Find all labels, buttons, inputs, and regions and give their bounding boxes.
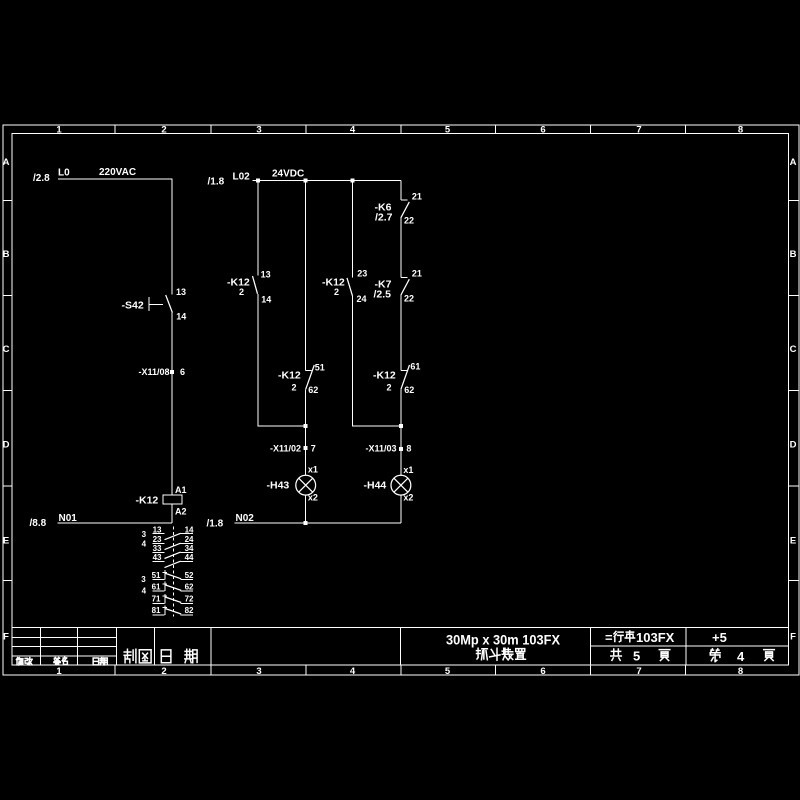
svg-text:/2.5: /2.5: [374, 289, 392, 301]
svg-text:24: 24: [185, 535, 194, 544]
svg-text:E: E: [790, 536, 796, 547]
svg-text:3: 3: [141, 575, 146, 584]
svg-text:3: 3: [256, 666, 261, 677]
svg-text:4: 4: [142, 586, 147, 595]
svg-text:24VDC: 24VDC: [272, 169, 304, 180]
svg-text:6: 6: [540, 666, 545, 677]
svg-text:x2: x2: [308, 493, 318, 503]
svg-text:43: 43: [153, 553, 162, 562]
svg-text:14: 14: [176, 312, 186, 322]
svg-text:N01: N01: [59, 513, 78, 524]
svg-text:4: 4: [350, 666, 356, 677]
svg-text:61: 61: [410, 362, 420, 372]
svg-text:62: 62: [404, 385, 414, 395]
svg-text:1: 1: [56, 666, 62, 677]
svg-text:C: C: [790, 344, 797, 355]
svg-text:3: 3: [256, 125, 261, 136]
svg-text:13: 13: [176, 287, 186, 297]
svg-text:14: 14: [261, 295, 271, 305]
svg-text:1: 1: [56, 125, 62, 136]
svg-text:61: 61: [152, 582, 161, 591]
svg-text:81: 81: [152, 606, 161, 615]
svg-text:4: 4: [737, 649, 745, 664]
svg-text:6: 6: [540, 125, 545, 136]
svg-text:6: 6: [180, 367, 185, 377]
svg-text:B: B: [790, 249, 797, 260]
svg-text:52: 52: [185, 571, 194, 580]
svg-text:-K12: -K12: [373, 370, 396, 382]
svg-text:5: 5: [445, 125, 451, 136]
svg-text:A: A: [790, 157, 797, 168]
svg-text:2: 2: [239, 287, 244, 297]
svg-text:5: 5: [445, 666, 451, 677]
svg-text:13: 13: [261, 270, 271, 280]
svg-text:8: 8: [406, 444, 411, 454]
svg-text:62: 62: [185, 582, 194, 591]
svg-text:23: 23: [357, 269, 367, 279]
svg-text:30Mp x 30m 103FX: 30Mp x 30m 103FX: [446, 632, 561, 648]
svg-text:82: 82: [185, 606, 194, 615]
svg-text:220VAC: 220VAC: [99, 167, 136, 178]
svg-text:7: 7: [636, 666, 641, 677]
svg-text:L0: L0: [58, 168, 70, 179]
svg-text:23: 23: [153, 535, 162, 544]
svg-text:B: B: [3, 249, 10, 260]
svg-text:72: 72: [185, 595, 194, 604]
svg-text:21: 21: [412, 192, 422, 202]
svg-text:-X11/08: -X11/08: [139, 367, 170, 377]
svg-text:2: 2: [387, 383, 392, 393]
svg-text:8: 8: [738, 125, 743, 136]
svg-text:2: 2: [292, 383, 297, 393]
svg-text:21: 21: [412, 269, 422, 279]
svg-text:/1.8: /1.8: [207, 519, 224, 530]
svg-text:4: 4: [142, 540, 147, 549]
svg-text:+5: +5: [712, 630, 727, 645]
svg-text:7: 7: [311, 444, 316, 454]
svg-text:62: 62: [308, 385, 318, 395]
svg-text:51: 51: [152, 571, 161, 580]
svg-text:33: 33: [153, 544, 162, 553]
svg-text:-H43: -H43: [267, 480, 290, 492]
svg-text:2: 2: [334, 287, 339, 297]
svg-text:=: =: [605, 630, 613, 645]
svg-text:x2: x2: [403, 493, 413, 503]
svg-text:13: 13: [153, 525, 162, 534]
svg-text:71: 71: [152, 595, 161, 604]
svg-text:A: A: [3, 157, 10, 168]
svg-text:/2.7: /2.7: [375, 212, 393, 224]
svg-text:-X11/03: -X11/03: [366, 444, 397, 454]
svg-text:34: 34: [185, 544, 194, 553]
svg-text:22: 22: [404, 216, 414, 226]
svg-text:N02: N02: [236, 513, 255, 524]
svg-text:-S42: -S42: [122, 300, 144, 312]
svg-text:103FX: 103FX: [636, 630, 675, 645]
svg-text:A2: A2: [175, 507, 187, 517]
svg-text:L02: L02: [233, 172, 251, 183]
svg-text:x1: x1: [308, 465, 318, 475]
svg-text:4: 4: [350, 125, 356, 136]
svg-text:8: 8: [738, 666, 743, 677]
svg-text:/8.8: /8.8: [30, 518, 47, 529]
svg-text:A1: A1: [175, 485, 187, 495]
svg-text:D: D: [3, 440, 10, 451]
svg-text:5: 5: [633, 649, 640, 664]
svg-text:-X11/02: -X11/02: [270, 444, 301, 454]
svg-text:C: C: [3, 344, 10, 355]
svg-text:x1: x1: [403, 465, 413, 475]
svg-text:24: 24: [357, 294, 367, 304]
svg-text:F: F: [790, 632, 796, 643]
svg-text:F: F: [3, 632, 9, 643]
svg-text:-H44: -H44: [364, 480, 387, 492]
svg-text:3: 3: [142, 530, 147, 539]
svg-text:51: 51: [315, 363, 325, 373]
svg-text:2: 2: [161, 666, 166, 677]
svg-text:22: 22: [404, 294, 414, 304]
svg-text:2: 2: [161, 125, 166, 136]
svg-text:44: 44: [185, 553, 194, 562]
svg-text:7: 7: [636, 125, 641, 136]
svg-text:14: 14: [185, 525, 194, 534]
svg-text:D: D: [790, 440, 797, 451]
svg-text:-K12: -K12: [136, 495, 159, 507]
svg-text:E: E: [3, 536, 9, 547]
svg-text:/2.8: /2.8: [33, 173, 50, 184]
svg-text:/1.8: /1.8: [208, 177, 225, 188]
svg-text:-K12: -K12: [278, 370, 301, 382]
